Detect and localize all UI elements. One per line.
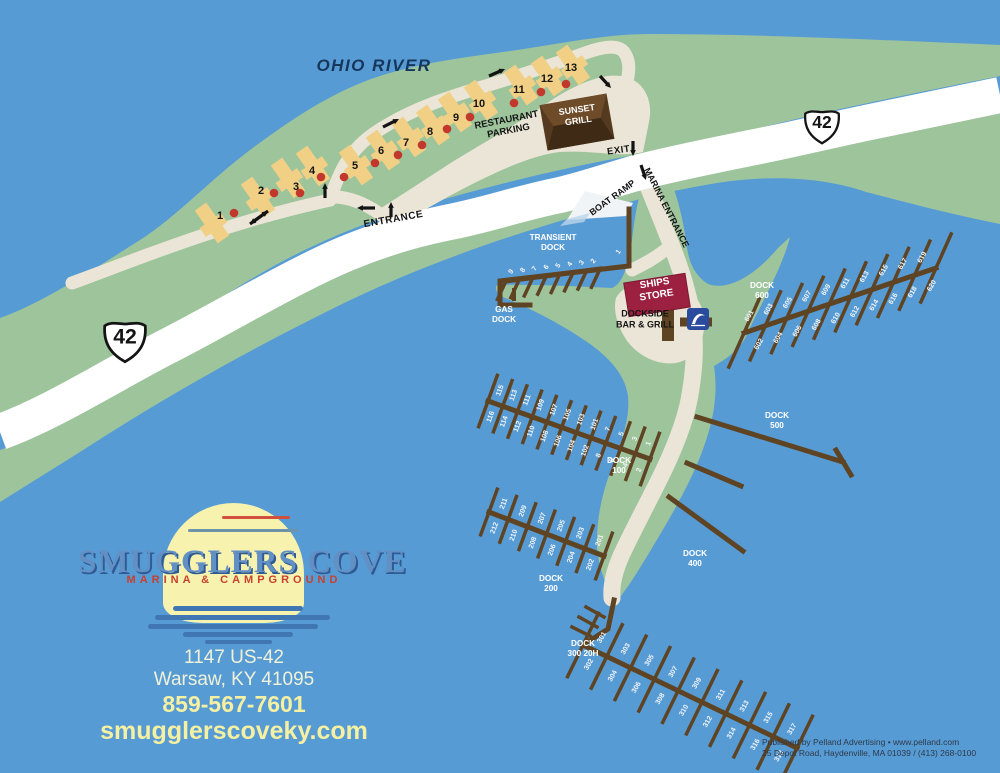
label-ohio-river: OHIO RIVER: [316, 56, 431, 75]
svg-text:OHIO RIVER: OHIO RIVER: [316, 56, 431, 75]
label-dockside-bar-grill: DOCKSIDEBAR & GRILL: [616, 309, 674, 330]
marina-map: 6016036056076096116136156176196026046066…: [0, 0, 1000, 773]
campsite-marker-dot: [371, 159, 380, 168]
svg-text:500: 500: [770, 421, 784, 430]
campsite-marker-dot: [340, 173, 349, 182]
svg-text:DOCK: DOCK: [683, 549, 707, 558]
route-number: 42: [113, 325, 137, 348]
campsite-number: 12: [541, 73, 553, 85]
campsite-marker-dot: [418, 141, 427, 150]
svg-text:DOCK: DOCK: [607, 456, 631, 465]
campsite-number: 13: [565, 62, 577, 74]
campsite-number: 8: [427, 126, 433, 138]
svg-text:BAR & GRILL: BAR & GRILL: [616, 320, 674, 330]
campsite-marker-dot: [562, 80, 571, 89]
svg-text:DOCK: DOCK: [539, 574, 563, 583]
campsite-marker-dot: [394, 151, 403, 160]
svg-text:600: 600: [755, 291, 769, 300]
campsite-marker-dot: [230, 209, 239, 218]
svg-text:DOCK: DOCK: [765, 411, 789, 420]
svg-text:DOCKSIDE: DOCKSIDE: [621, 309, 669, 319]
campsite-number: 11: [513, 84, 525, 96]
campsite-number: 5: [352, 160, 358, 172]
route-number: 42: [812, 112, 832, 132]
marina-sign-sailfish-icon: [687, 308, 709, 330]
campsite-number: 3: [293, 181, 299, 193]
campsite-marker-dot: [466, 113, 475, 122]
svg-text:200: 200: [544, 584, 558, 593]
campsite-number: 4: [309, 165, 316, 177]
campsite-number: 6: [378, 145, 384, 157]
svg-text:DOCK: DOCK: [541, 243, 565, 252]
svg-text:400: 400: [688, 559, 702, 568]
svg-text:TRANSIENT: TRANSIENT: [530, 233, 577, 242]
campsite-marker-dot: [270, 189, 279, 198]
campsite-number: 10: [473, 98, 485, 110]
campsite-number: 7: [403, 137, 409, 149]
label-gas-dock: GASDOCK: [492, 305, 516, 324]
svg-text:DOCK: DOCK: [571, 639, 595, 648]
campsite-marker-dot: [317, 173, 326, 182]
campsite-marker-dot: [510, 99, 519, 108]
svg-text:100: 100: [612, 466, 626, 475]
campsite-number: 1: [217, 210, 223, 222]
svg-text:300 20H: 300 20H: [568, 649, 599, 658]
label-dock-300: DOCK300 20H: [568, 639, 599, 658]
svg-text:DOCK: DOCK: [492, 315, 516, 324]
campsite-marker-dot: [443, 125, 452, 134]
campsite-marker-dot: [537, 88, 546, 97]
campsite-number: 2: [258, 185, 264, 197]
svg-text:GAS: GAS: [495, 305, 513, 314]
map-svg: 6016036056076096116136156176196026046066…: [0, 0, 1000, 773]
campsite-number: 9: [453, 112, 459, 124]
svg-text:DOCK: DOCK: [750, 281, 774, 290]
